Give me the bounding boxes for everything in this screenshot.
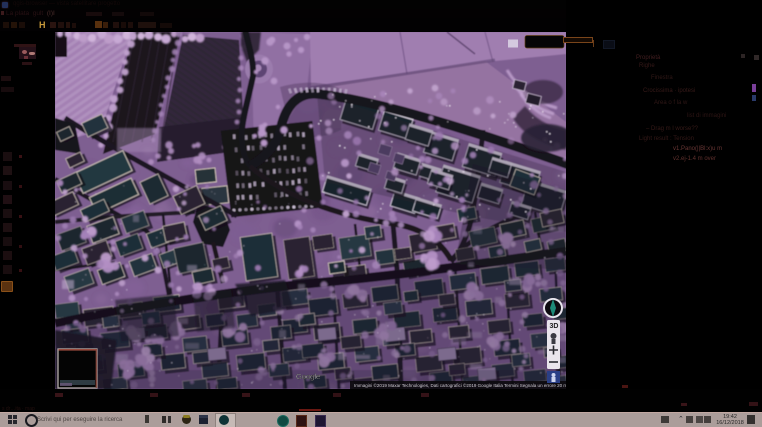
svg-text:3D: 3D [550, 323, 559, 330]
svg-text:Immagini ©2019 Maxar Technolog: Immagini ©2019 Maxar Technologies, Dati … [354, 382, 566, 388]
svg-text:Google: Google [296, 372, 320, 381]
